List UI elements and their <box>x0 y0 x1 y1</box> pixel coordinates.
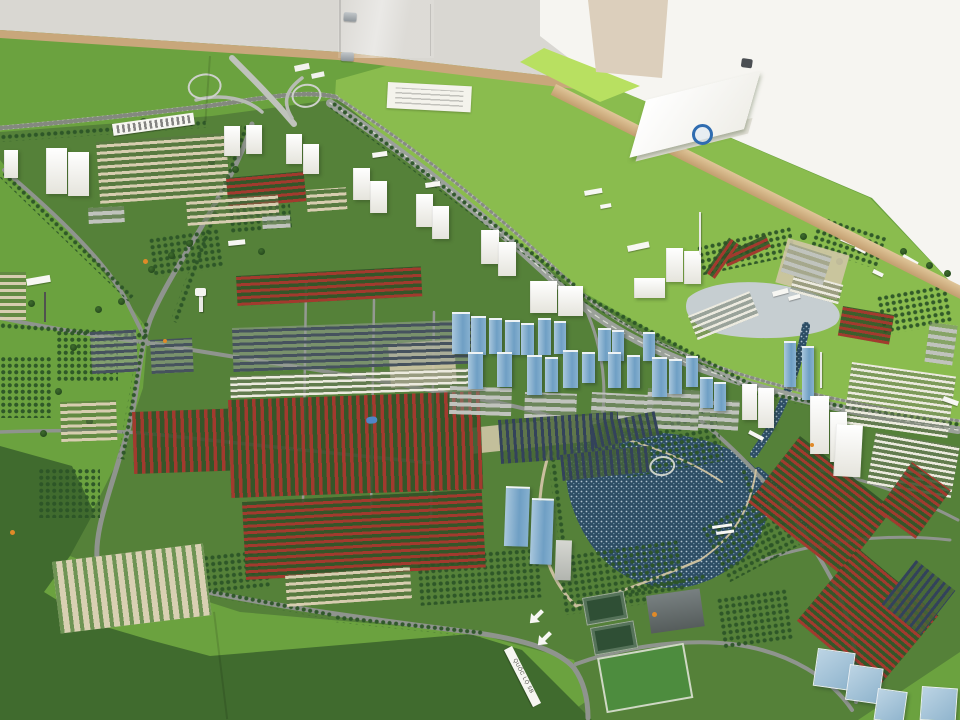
cbd-tower-20 <box>669 359 682 394</box>
cbd-tower-3 <box>489 318 502 354</box>
tree <box>118 298 125 305</box>
orange-roof-detail <box>163 339 167 343</box>
water-tower-stem <box>199 296 203 312</box>
tree <box>95 306 102 313</box>
frosted-tower-15 <box>684 251 701 284</box>
south-tower-3 <box>555 540 572 581</box>
tree <box>28 300 35 307</box>
central-slate-rows <box>232 319 478 372</box>
northwest-mall <box>88 206 125 224</box>
west-villa-quarter <box>132 409 230 474</box>
west-c-block <box>60 400 117 442</box>
orange-tree <box>143 259 148 264</box>
frosted-tower-4 <box>303 144 319 174</box>
tree <box>944 270 951 277</box>
west-edge-tower <box>4 150 18 178</box>
northwest-apartments <box>96 133 230 204</box>
cbd-tower-22 <box>700 377 713 408</box>
frosted-tower-9 <box>481 230 499 264</box>
glass-clamp-2 <box>341 52 354 61</box>
frosted-slab-12 <box>558 286 583 316</box>
south-red-rows <box>242 489 486 579</box>
cbd-tower-19 <box>652 357 667 397</box>
tree <box>168 252 175 259</box>
white-sign <box>387 82 472 112</box>
tree <box>258 248 265 255</box>
nw-white-slab-2 <box>68 152 89 196</box>
cbd-tower-2 <box>471 316 486 355</box>
cbd-tower-16 <box>608 352 621 388</box>
northwest-depot <box>262 215 291 229</box>
cbd-tower-11 <box>545 357 558 392</box>
cbd-tower-8 <box>468 352 483 389</box>
cbd-tower-9 <box>497 352 512 387</box>
frosted-slab-13 <box>634 278 665 298</box>
tree-patch <box>38 468 100 518</box>
frosted-tower-2 <box>246 125 262 154</box>
east-white-tower-2 <box>758 388 774 428</box>
cbd-base-1 <box>449 386 512 416</box>
orange-door-detail <box>652 612 657 617</box>
interchange-overpass <box>232 58 294 124</box>
tree <box>40 430 47 437</box>
frosted-tower-14 <box>666 248 683 282</box>
tree <box>70 344 77 351</box>
frosted-tower-6 <box>370 181 387 213</box>
orange-roof-detail <box>810 443 814 447</box>
cbd-tower-1 <box>452 312 470 354</box>
brochure-logo <box>692 124 713 145</box>
cbd-tower-23 <box>714 382 726 411</box>
south-glass-box-3 <box>874 688 908 720</box>
frosted-tower-3 <box>286 134 302 164</box>
frosted-tower-7 <box>416 194 433 227</box>
northwest-apartments-3 <box>306 187 347 212</box>
cbd-tower-21 <box>686 356 698 387</box>
cbd-tower-6 <box>538 318 551 355</box>
cbd-tower-17 <box>627 355 640 388</box>
cbd-tower-12 <box>563 350 578 388</box>
tree <box>55 388 62 395</box>
school-block <box>150 338 194 374</box>
tree <box>926 262 933 269</box>
water-tower-cap <box>195 288 206 296</box>
antenna-mast <box>44 292 46 322</box>
wall-clip-1 <box>741 58 753 68</box>
west-edge-block <box>0 272 26 320</box>
flag-pole-northeast <box>699 212 701 254</box>
east-white-complex <box>833 424 863 477</box>
glass-panel-edge-left <box>339 0 341 52</box>
east-edge-tower <box>924 322 957 366</box>
frosted-tower-8 <box>432 206 449 239</box>
south-twin-tower-2 <box>530 498 554 565</box>
tree <box>148 266 155 273</box>
frosted-tower-10 <box>498 242 516 276</box>
cbd-tower-13 <box>582 352 595 383</box>
cbd-tower-5 <box>521 323 534 355</box>
tree-patch <box>0 356 52 418</box>
model-photo: QUỐC LỘ 5B <box>0 0 960 720</box>
east-blue-tower-2 <box>802 346 814 400</box>
orange-tree <box>10 530 15 535</box>
cbd-tower-4 <box>505 320 520 355</box>
central-villa-quarter <box>228 391 483 498</box>
glass-panel-edge-right <box>430 4 431 56</box>
south-glass-box-4 <box>920 686 958 720</box>
frosted-slab-11 <box>530 281 557 313</box>
frosted-tower-5 <box>353 168 370 200</box>
tree <box>232 166 239 173</box>
flag-pole-east <box>820 352 822 388</box>
cbd-tower-10 <box>527 355 542 395</box>
east-white-tower-1 <box>742 384 757 420</box>
glass-clamp-1 <box>343 12 357 22</box>
glass-panel <box>338 0 434 58</box>
tree-patch <box>716 588 795 650</box>
nw-white-slab-1 <box>46 148 67 194</box>
frosted-tower-1 <box>224 126 240 156</box>
west-slate-rows <box>90 330 138 374</box>
tree <box>800 233 807 240</box>
tree <box>186 240 193 247</box>
south-twin-tower-1 <box>504 486 530 547</box>
east-blue-tower-1 <box>784 341 796 387</box>
